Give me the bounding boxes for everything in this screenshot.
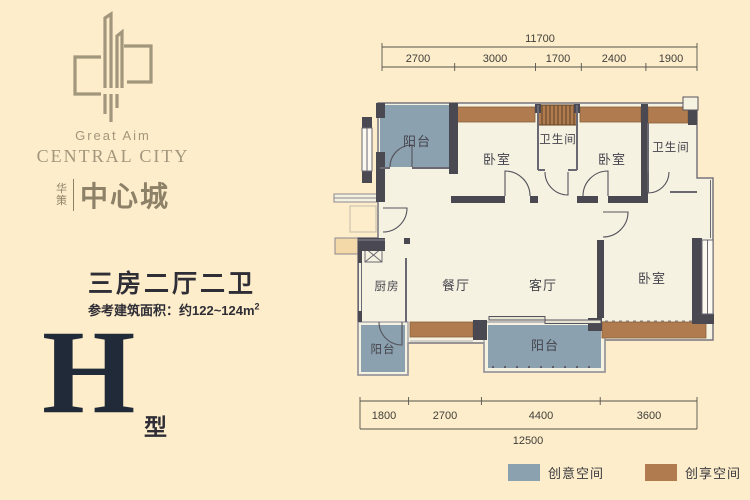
room-label-dining: 餐厅 bbox=[442, 278, 470, 293]
room-label-bathroom-2: 卫生间 bbox=[652, 140, 690, 154]
dim-bottom-seg-3: 4400 bbox=[529, 410, 553, 422]
dim-top-seg-1: 2700 bbox=[406, 53, 430, 65]
room-label-bedroom-2: 卧室 bbox=[598, 152, 626, 167]
room-label-balcony-top-left: 阳台 bbox=[403, 134, 431, 149]
dimension-top-labels: 11700 2700 3000 1700 2400 1900 bbox=[406, 33, 683, 65]
room-label-bedroom-3: 卧室 bbox=[638, 271, 666, 286]
legend-swatch-creative-space bbox=[508, 464, 540, 481]
dim-top-seg-4: 2400 bbox=[602, 53, 626, 65]
floorplan-drawing: sina.com.cn sina.com.cn sina.com.cn bbox=[0, 0, 750, 500]
dim-top-total: 11700 bbox=[525, 33, 555, 45]
room-label-kitchen: 厨房 bbox=[375, 280, 400, 293]
dim-bottom-seg-1: 1800 bbox=[372, 410, 396, 422]
room-label-balcony-kitchen: 阳台 bbox=[371, 342, 396, 356]
dim-top-seg-5: 1900 bbox=[659, 53, 683, 65]
dim-top-seg-3: 1700 bbox=[546, 53, 570, 65]
legend-swatch-enjoy-space bbox=[645, 464, 677, 481]
legend-label-creative-space: 创意空间 bbox=[548, 466, 604, 481]
room-label-living: 客厅 bbox=[529, 278, 557, 293]
stair-hatch bbox=[538, 105, 577, 125]
dim-top-seg-2: 3000 bbox=[483, 53, 507, 65]
plan-legend: 创意空间 创享空间 bbox=[508, 464, 741, 481]
room-label-bathroom-1: 卫生间 bbox=[539, 132, 577, 146]
room-label-bedroom-1: 卧室 bbox=[483, 152, 511, 167]
dimension-bottom-labels: 1800 2700 4400 3600 12500 bbox=[372, 410, 661, 447]
dim-bottom-seg-4: 3600 bbox=[637, 410, 661, 422]
room-label-balcony-main: 阳台 bbox=[531, 338, 559, 353]
legend-label-enjoy-space: 创享空间 bbox=[685, 466, 741, 481]
dim-bottom-seg-2: 2700 bbox=[433, 410, 457, 422]
dim-bottom-total: 12500 bbox=[513, 435, 544, 447]
floorplan-page: Great Aim CENTRAL CITY 华 策 中心城 三房二厅二卫 参考… bbox=[0, 0, 750, 500]
